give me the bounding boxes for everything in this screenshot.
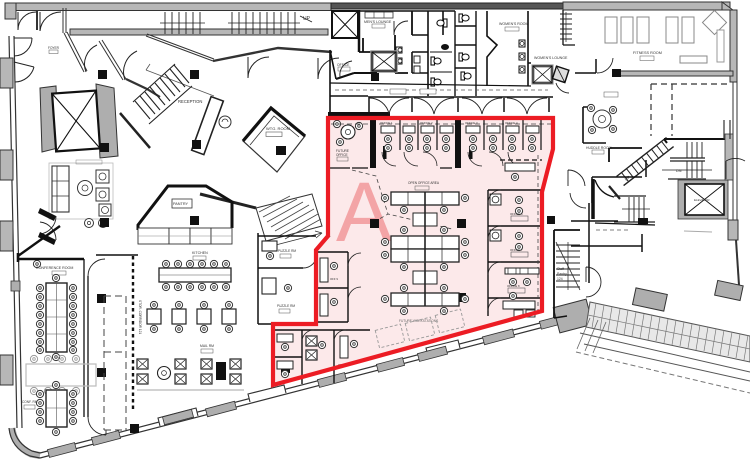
svg-text:UP: UP xyxy=(303,16,311,22)
svg-text:FOYER: FOYER xyxy=(48,46,60,50)
svg-text:WOMEN'S ROOM: WOMEN'S ROOM xyxy=(499,22,528,26)
svg-text:OFFICE 8: OFFICE 8 xyxy=(507,284,520,288)
svg-text:FUTURE WORKSTATIONS: FUTURE WORKSTATIONS xyxy=(399,319,438,323)
svg-text:OFFICE 4: OFFICE 4 xyxy=(505,121,518,125)
svg-text:OFFICE 3: OFFICE 3 xyxy=(465,121,478,125)
svg-text:CONFERENCE ROOM: CONFERENCE ROOM xyxy=(36,266,73,270)
svg-text:ELEVATOR: ELEVATOR xyxy=(694,198,710,202)
svg-text:PANTRY: PANTRY xyxy=(173,202,189,206)
svg-text:OFFICE 6: OFFICE 6 xyxy=(510,212,523,216)
svg-text:CONF. RM: CONF. RM xyxy=(22,400,38,404)
svg-text:Staff: Staff xyxy=(557,267,564,271)
svg-text:KITCHEN: KITCHEN xyxy=(192,251,208,255)
svg-text:DN: DN xyxy=(676,169,682,173)
svg-text:OFFICE 1: OFFICE 1 xyxy=(380,121,393,125)
svg-text:WOMEN'S LOUNGE: WOMEN'S LOUNGE xyxy=(534,56,568,60)
svg-text:OPEN OFFICE AREA: OPEN OFFICE AREA xyxy=(408,181,440,185)
svg-text:OFFICE: OFFICE xyxy=(336,153,348,157)
svg-text:Pantry: Pantry xyxy=(557,272,567,276)
svg-text:MAIL RM: MAIL RM xyxy=(200,344,214,348)
svg-text:WTG. ROOM: WTG. ROOM xyxy=(266,126,290,131)
svg-text:PUZZLE RM: PUZZLE RM xyxy=(277,304,295,308)
svg-text:OFF 9: OFF 9 xyxy=(330,277,338,281)
svg-text:OFFICE 2: OFFICE 2 xyxy=(420,121,433,125)
svg-text:RECEPTION: RECEPTION xyxy=(178,99,202,104)
svg-text:HUDDLE ROOM: HUDDLE ROOM xyxy=(586,146,612,150)
svg-text:PUZZLE RM: PUZZLE RM xyxy=(278,249,296,253)
svg-text:124: 124 xyxy=(557,277,563,281)
svg-text:STOR. CORRIDOR 121: STOR. CORRIDOR 121 xyxy=(138,300,142,334)
svg-text:FITNESS ROOM: FITNESS ROOM xyxy=(633,51,662,55)
svg-text:OFFICE 7: OFFICE 7 xyxy=(510,248,523,252)
svg-text:MEN'S LOUNGE: MEN'S LOUNGE xyxy=(364,20,392,24)
